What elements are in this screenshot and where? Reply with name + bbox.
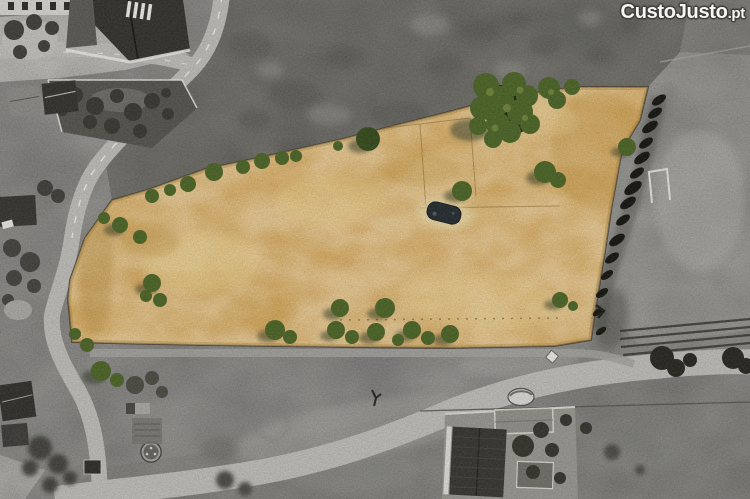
photo-grain (0, 0, 750, 499)
custojusto-watermark: CustoJusto.pt (621, 1, 745, 24)
aerial-photo (0, 0, 750, 499)
listing-photo: CustoJusto.pt (0, 0, 750, 499)
watermark-brand: CustoJusto (621, 1, 728, 23)
watermark-tld: .pt (728, 5, 745, 22)
